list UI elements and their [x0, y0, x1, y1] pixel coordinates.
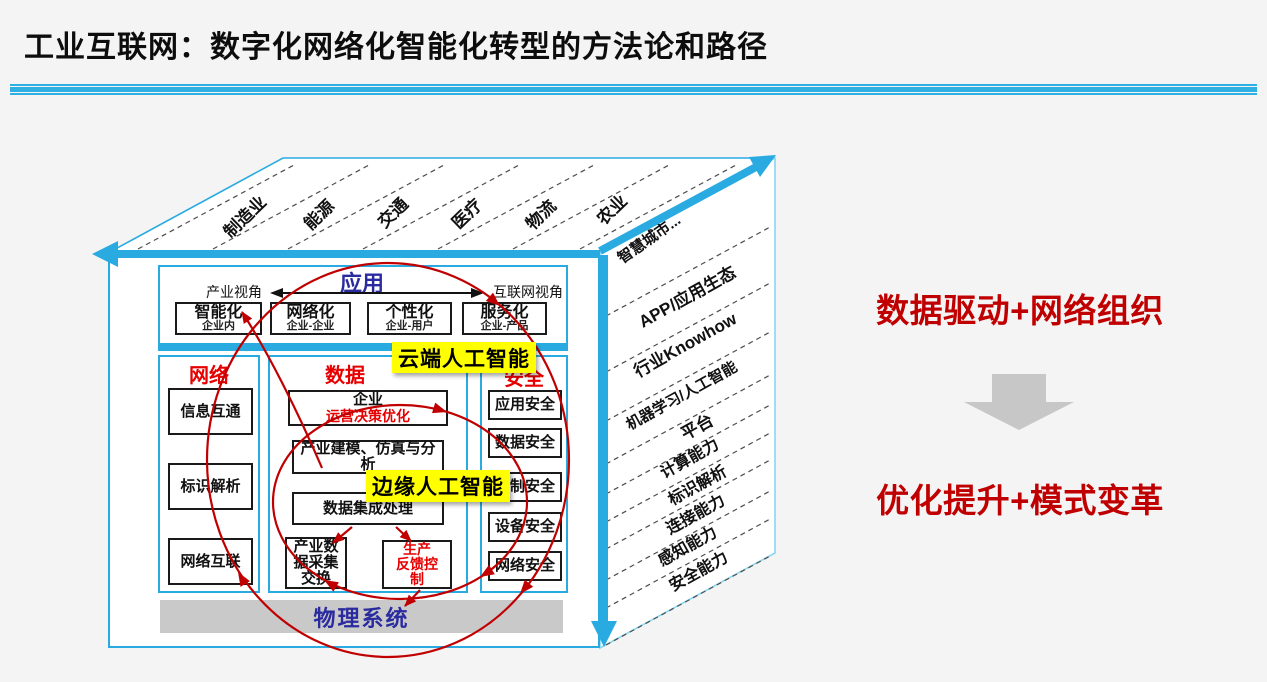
right-face-separators: [606, 226, 772, 645]
top-sector-label: 能源: [300, 196, 338, 234]
data-box-enterprise-optimization: 企业 运营决策优化: [288, 390, 448, 426]
physical-system-label: 物理系统: [313, 601, 409, 633]
depth-edge-arrowhead: [749, 155, 776, 177]
top-face-separators: [138, 165, 736, 249]
data-box-title: 企业: [353, 392, 383, 408]
right-layer-label: 机器学习/人工智能: [623, 358, 740, 434]
industry-view-label: 产业视角: [194, 282, 274, 302]
top-sector-label: 农业: [592, 191, 631, 230]
right-layer-label: 平台: [677, 410, 716, 444]
app-box-title: 服务化: [480, 305, 528, 321]
data-box-modeling-simulation: 产业建模、仿真与分析: [292, 440, 444, 474]
internet-view-label: 互联网视角: [482, 282, 574, 302]
app-box-servitized: 服务化 企业-产品: [462, 302, 547, 335]
data-box-subtitle: 运营决策优化: [326, 408, 410, 424]
right-layer-label: 安全能力: [666, 547, 731, 595]
app-box-subtitle: 企业-用户: [386, 321, 434, 332]
top-sector-label: 制造业: [220, 192, 271, 242]
edge-ai-label: 边缘人工智能: [366, 470, 510, 502]
cloud-ai-label: 云端人工智能: [392, 342, 536, 373]
data-column-title: 数据: [310, 359, 380, 388]
cube-top-face: [108, 158, 775, 253]
app-box-title: 智能化: [194, 305, 242, 321]
application-title: 应用: [326, 266, 398, 298]
transformation-down-arrow: [964, 374, 1074, 430]
app-box-personalized: 个性化 企业-用户: [367, 302, 452, 335]
data-box-feedback-control: 生产 反馈控 制: [382, 540, 452, 589]
right-face-layer-labels: APP/应用生态 行业Knowhow 机器学习/人工智能 平台 计算能力 标识解…: [623, 262, 741, 595]
network-box-info-exchange: 信息互通: [168, 388, 253, 435]
app-box-subtitle: 企业-产品: [481, 321, 529, 332]
data-box-collection-exchange: 产业数 据采集 交换: [285, 537, 347, 589]
network-box-interconnect: 网络互联: [168, 538, 253, 585]
network-column-title: 网络: [174, 359, 244, 388]
app-box-subtitle: 企业-企业: [287, 321, 335, 332]
top-sector-label: 交通: [374, 194, 412, 232]
app-box-networked: 网络化 企业-企业: [270, 302, 351, 335]
security-box-device: 设备安全: [488, 512, 562, 542]
top-sector-label: 物流: [522, 196, 560, 234]
top-sector-label: 智慧城市...: [614, 211, 684, 267]
cube-right-face: [600, 158, 775, 648]
top-sector-label: 医疗: [448, 195, 486, 233]
right-layer-label: 行业Knowhow: [629, 308, 740, 382]
app-box-title: 网络化: [286, 305, 334, 321]
slide-title: 工业互联网：数字化网络化智能化转型的方法论和路径: [24, 22, 768, 66]
right-layer-label: 感知能力: [655, 522, 720, 570]
network-box-id-resolution: 标识解析: [168, 463, 253, 510]
security-box-application: 应用安全: [488, 390, 562, 420]
annotation-data-driven: 数据驱动+网络组织: [852, 284, 1188, 332]
security-box-data: 数据安全: [488, 428, 562, 458]
right-layer-label: 计算能力: [657, 434, 722, 482]
app-box-title: 个性化: [385, 305, 433, 321]
right-layer-label: 标识解析: [664, 461, 730, 509]
security-box-network: 网络安全: [488, 551, 562, 581]
app-box-subtitle: 企业内: [202, 321, 235, 332]
title-divider-rule: [10, 84, 1257, 96]
right-layer-label: APP/应用生态: [635, 262, 739, 332]
annotation-optimization: 优化提升+模式变革: [852, 474, 1188, 522]
slide: 工业互联网：数字化网络化智能化转型的方法论和路径 制造业: [0, 0, 1267, 682]
physical-system-bar: 物理系统: [160, 600, 563, 633]
app-box-intelligent: 智能化 企业内: [175, 302, 262, 335]
right-layer-label: 连接能力: [663, 490, 728, 538]
